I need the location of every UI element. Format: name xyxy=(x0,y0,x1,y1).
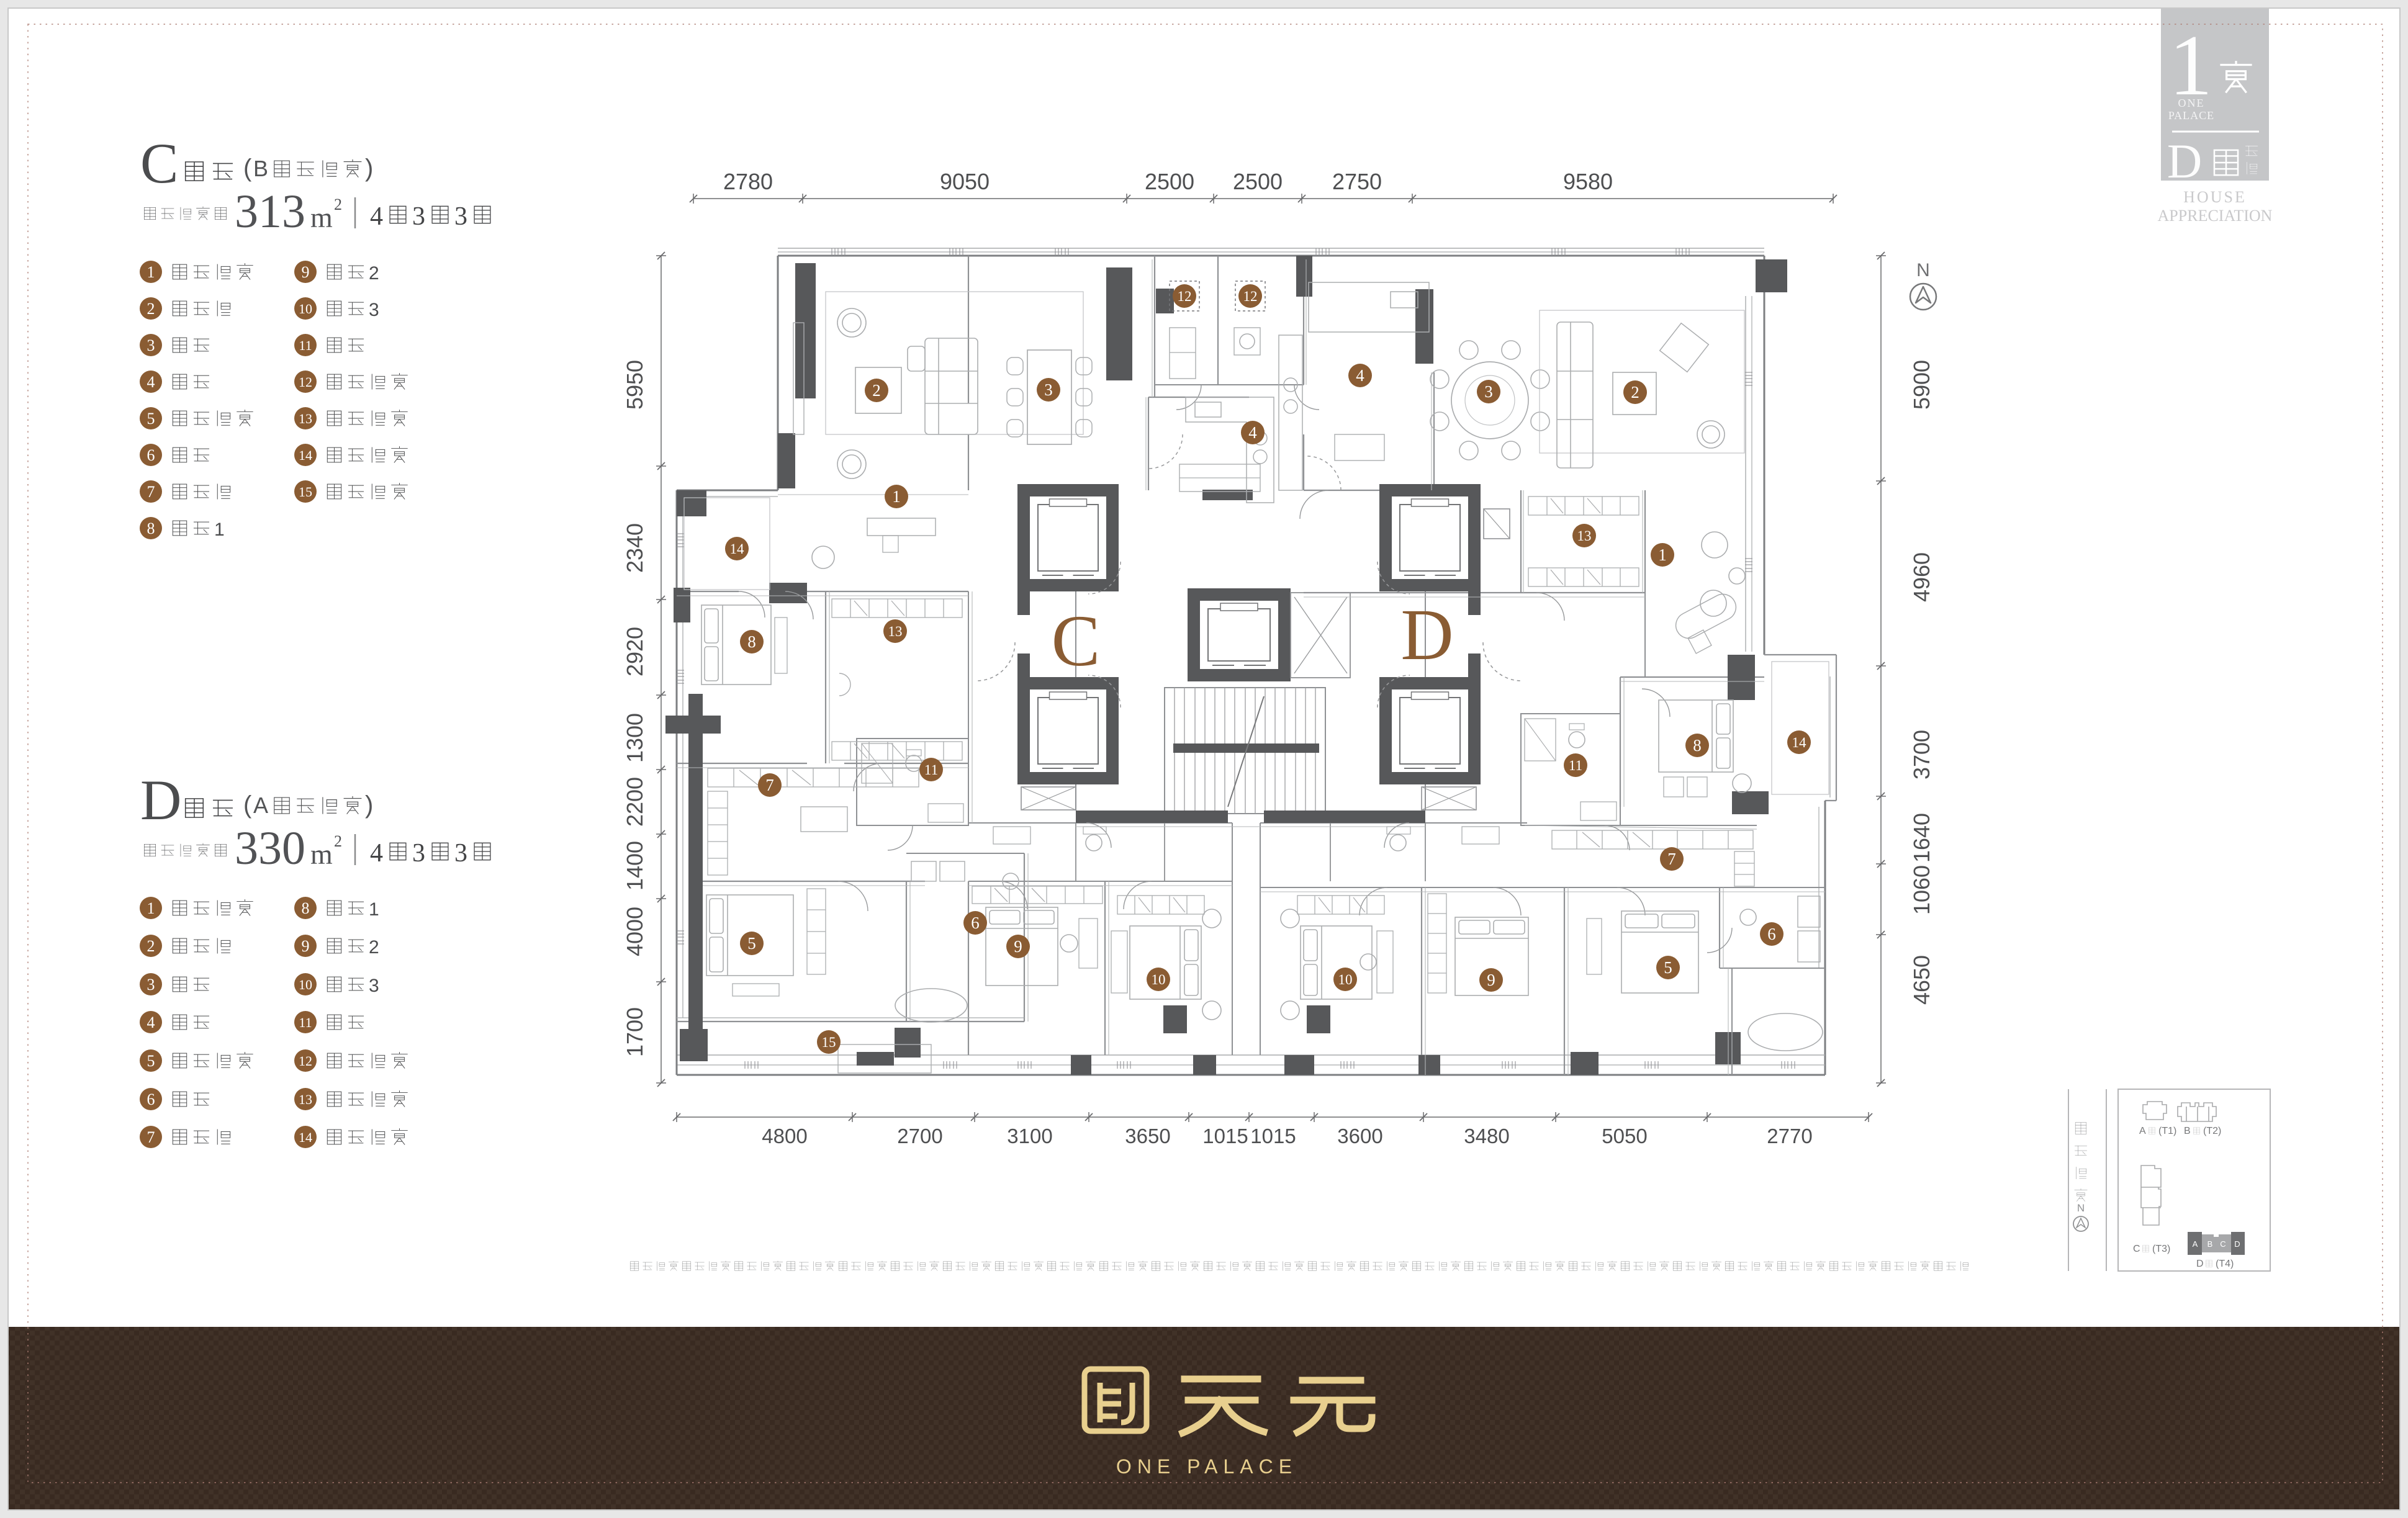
svg-text:6: 6 xyxy=(1767,925,1776,943)
svg-text:330: 330 xyxy=(235,822,305,874)
svg-text:4: 4 xyxy=(370,839,383,868)
svg-text:2700: 2700 xyxy=(897,1125,942,1147)
svg-text:1640: 1640 xyxy=(1909,813,1934,863)
svg-text:ONE: ONE xyxy=(2178,97,2205,109)
svg-text:PALACE: PALACE xyxy=(2168,109,2214,122)
svg-text:10: 10 xyxy=(1338,972,1353,987)
svg-text:B: B xyxy=(2184,1126,2191,1136)
svg-text:(T3): (T3) xyxy=(2152,1244,2170,1254)
svg-text:12: 12 xyxy=(1178,289,1192,304)
svg-text:1: 1 xyxy=(369,899,379,920)
svg-text:14: 14 xyxy=(1792,735,1807,750)
svg-text:1: 1 xyxy=(214,519,225,540)
svg-text:8: 8 xyxy=(747,632,756,651)
svg-text:3: 3 xyxy=(147,336,155,354)
svg-text:15: 15 xyxy=(299,484,312,500)
svg-text:2340: 2340 xyxy=(622,523,647,573)
svg-text:12: 12 xyxy=(299,374,312,390)
svg-text:6: 6 xyxy=(147,1090,155,1108)
svg-text:B: B xyxy=(2207,1239,2213,1249)
svg-text:1060: 1060 xyxy=(1909,865,1934,915)
svg-text:3650: 3650 xyxy=(1125,1125,1170,1147)
svg-text:2200: 2200 xyxy=(622,777,647,827)
svg-text:11: 11 xyxy=(1569,758,1582,773)
svg-text:1015: 1015 xyxy=(1202,1125,1248,1147)
svg-text:9580: 9580 xyxy=(1563,169,1613,194)
svg-text:N: N xyxy=(1916,260,1930,281)
svg-text:2500: 2500 xyxy=(1145,169,1194,194)
svg-text:11: 11 xyxy=(299,1015,312,1030)
svg-text:11: 11 xyxy=(299,338,312,353)
svg-text:1015: 1015 xyxy=(1250,1125,1296,1147)
svg-text:1: 1 xyxy=(147,263,155,281)
svg-text:3: 3 xyxy=(147,976,155,994)
svg-text:2: 2 xyxy=(147,300,155,318)
svg-text:2: 2 xyxy=(369,263,379,284)
svg-text:13: 13 xyxy=(888,624,903,639)
svg-text:2: 2 xyxy=(872,381,881,400)
svg-text:2: 2 xyxy=(334,195,342,213)
svg-text:C: C xyxy=(1052,600,1101,681)
svg-text:3: 3 xyxy=(412,839,425,868)
svg-text:6: 6 xyxy=(147,446,155,464)
svg-text:3600: 3600 xyxy=(1337,1125,1382,1147)
svg-text:1400: 1400 xyxy=(622,841,647,891)
svg-text:3480: 3480 xyxy=(1464,1125,1509,1147)
svg-text:13: 13 xyxy=(1577,528,1592,544)
svg-text:APPRECIATION: APPRECIATION xyxy=(2158,207,2273,225)
svg-text:m: m xyxy=(310,838,333,870)
svg-text:1300: 1300 xyxy=(622,713,647,763)
svg-text:2: 2 xyxy=(334,832,342,850)
svg-text:D: D xyxy=(1400,594,1453,675)
svg-text:2500: 2500 xyxy=(1233,169,1283,194)
svg-text:D: D xyxy=(140,768,181,832)
svg-text:4: 4 xyxy=(1356,366,1364,385)
svg-text:1700: 1700 xyxy=(622,1007,647,1057)
svg-text:10: 10 xyxy=(299,301,312,317)
svg-text:15: 15 xyxy=(822,1035,836,1050)
svg-text:3: 3 xyxy=(1044,380,1053,399)
svg-text:2920: 2920 xyxy=(622,627,647,676)
svg-text:A: A xyxy=(2139,1126,2146,1136)
svg-text:C: C xyxy=(140,132,178,195)
svg-text:): ) xyxy=(365,155,373,182)
svg-text:5950: 5950 xyxy=(622,360,647,410)
svg-text:9050: 9050 xyxy=(940,169,990,194)
svg-text:4: 4 xyxy=(147,373,155,391)
svg-text:2770: 2770 xyxy=(1767,1125,1812,1147)
svg-text:2: 2 xyxy=(147,937,155,955)
svg-text:13: 13 xyxy=(299,1092,312,1107)
svg-text:4650: 4650 xyxy=(1909,955,1934,1005)
svg-text:5: 5 xyxy=(147,1052,155,1070)
svg-text:D: D xyxy=(2234,1239,2240,1249)
svg-text:14: 14 xyxy=(730,541,745,557)
svg-text:1: 1 xyxy=(892,487,901,506)
svg-text:2: 2 xyxy=(1631,383,1639,402)
svg-text:): ) xyxy=(365,791,373,819)
svg-text:3100: 3100 xyxy=(1007,1125,1052,1147)
svg-text:3: 3 xyxy=(369,300,379,320)
svg-text:7: 7 xyxy=(1667,850,1676,868)
svg-text:3: 3 xyxy=(454,839,467,868)
svg-text:A: A xyxy=(253,793,268,818)
svg-text:8: 8 xyxy=(147,519,155,537)
svg-text:5: 5 xyxy=(147,410,155,428)
svg-text:2: 2 xyxy=(369,937,379,958)
svg-text:8: 8 xyxy=(1693,736,1702,755)
svg-text:10: 10 xyxy=(299,977,312,992)
svg-text:6: 6 xyxy=(971,914,980,932)
svg-text:3: 3 xyxy=(454,202,467,231)
svg-text:9: 9 xyxy=(1487,971,1495,989)
svg-text:1: 1 xyxy=(1658,546,1667,564)
svg-text:7: 7 xyxy=(147,483,155,501)
svg-text:C: C xyxy=(2133,1244,2140,1254)
svg-text:8: 8 xyxy=(302,899,310,917)
svg-text:4: 4 xyxy=(370,202,383,231)
svg-text:A: A xyxy=(2193,1239,2198,1249)
svg-text:(T2): (T2) xyxy=(2203,1126,2221,1136)
svg-text:5900: 5900 xyxy=(1909,360,1934,410)
svg-text:313: 313 xyxy=(235,186,305,238)
svg-text:1: 1 xyxy=(147,899,155,917)
svg-text:13: 13 xyxy=(299,411,312,426)
svg-text:9: 9 xyxy=(1014,937,1022,956)
svg-text:(: ( xyxy=(243,791,252,819)
svg-text:m: m xyxy=(310,202,333,233)
svg-text:4800: 4800 xyxy=(762,1125,807,1147)
svg-text:4000: 4000 xyxy=(622,907,647,956)
svg-text:C: C xyxy=(2220,1239,2225,1249)
svg-text:3: 3 xyxy=(369,976,379,996)
svg-text:12: 12 xyxy=(299,1053,312,1069)
svg-text:10: 10 xyxy=(1152,972,1166,987)
svg-text:3: 3 xyxy=(1484,382,1493,401)
svg-text:(T1): (T1) xyxy=(2158,1126,2176,1136)
svg-text:HOUSE: HOUSE xyxy=(2183,188,2247,206)
svg-text:2750: 2750 xyxy=(1332,169,1382,194)
svg-text:9: 9 xyxy=(302,937,310,955)
svg-text:4: 4 xyxy=(1248,423,1257,442)
svg-text:3: 3 xyxy=(412,202,425,231)
svg-text:14: 14 xyxy=(299,1130,312,1145)
svg-text:3700: 3700 xyxy=(1909,730,1934,779)
svg-text:11: 11 xyxy=(924,762,938,778)
svg-text:14: 14 xyxy=(299,447,312,463)
svg-text:B: B xyxy=(253,156,268,181)
svg-text:4960: 4960 xyxy=(1909,552,1934,602)
svg-text:5050: 5050 xyxy=(1602,1125,1647,1147)
svg-text:N: N xyxy=(2077,1202,2085,1214)
svg-text:4: 4 xyxy=(147,1013,155,1031)
svg-text:7: 7 xyxy=(765,776,774,794)
svg-text:5: 5 xyxy=(747,934,756,953)
svg-text:D: D xyxy=(2196,1259,2204,1269)
svg-text:(T4): (T4) xyxy=(2216,1259,2234,1269)
svg-text:2780: 2780 xyxy=(723,169,773,194)
svg-text:12: 12 xyxy=(1243,289,1258,304)
svg-text:ONE PALACE: ONE PALACE xyxy=(1116,1455,1297,1478)
svg-text:5: 5 xyxy=(1664,958,1672,977)
svg-text:7: 7 xyxy=(147,1128,155,1146)
svg-text:D: D xyxy=(2167,134,2202,188)
svg-text:(: ( xyxy=(243,155,252,182)
svg-text:9: 9 xyxy=(302,263,310,281)
